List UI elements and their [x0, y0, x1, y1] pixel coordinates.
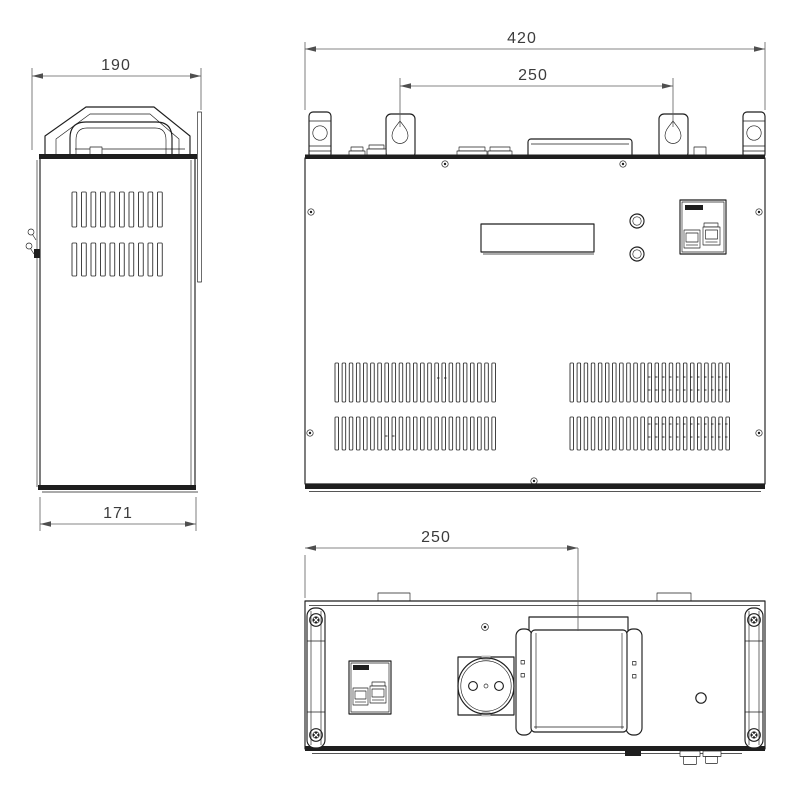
carry-handle-side: [45, 107, 190, 155]
three-view-drawing-canvas: 190 171: [0, 0, 800, 800]
lcd-display: [481, 224, 594, 254]
mount-keyhole-right: [659, 114, 688, 158]
bottom-view: 250: [305, 529, 765, 765]
circuit-breaker-bottom: [349, 661, 391, 714]
dim-label-250-front: 250: [518, 67, 548, 84]
technical-drawing-page: 190 171: [0, 0, 800, 800]
breaker-toggle-left: [684, 230, 700, 248]
dim-label-250-bottom: 250: [421, 529, 451, 546]
cabinet-body-side: [37, 154, 198, 492]
dim-label-190: 190: [101, 57, 131, 74]
mount-rail-right: [745, 608, 763, 748]
rail-end-right: [743, 112, 765, 158]
power-socket: [458, 656, 514, 717]
mount-keyhole-left: [386, 114, 415, 158]
front-vent-right-row1: [570, 363, 729, 402]
breaker-toggle-right: [370, 682, 386, 703]
dimension-depth-body: 171: [40, 497, 196, 531]
dim-label-171: 171: [103, 505, 133, 522]
top-edge-tabs: [378, 593, 691, 601]
front-vent-left-row1: [335, 363, 495, 402]
rail-end-left: [309, 112, 331, 158]
wall-bracket-edge: [198, 112, 202, 282]
breaker-toggle-right: [703, 223, 720, 245]
dimension-mounting-span: 250: [400, 67, 673, 127]
handle-base-tab: [90, 147, 102, 155]
mount-rail-left: [307, 608, 325, 748]
front-vent-right-row2: [570, 417, 729, 450]
cable-glands: [625, 751, 721, 765]
breaker-toggle-left: [353, 688, 368, 705]
dim-label-420: 420: [507, 30, 537, 47]
terminal-box: [516, 617, 642, 735]
circuit-breaker-front: [680, 200, 726, 254]
front-view: 420 250: [305, 30, 765, 492]
side-view: 190 171: [26, 57, 202, 531]
cable-gland: [703, 751, 721, 764]
front-vent-left-row2: [335, 417, 495, 450]
door-latch-details: [26, 229, 40, 258]
cable-gland: [680, 751, 700, 765]
